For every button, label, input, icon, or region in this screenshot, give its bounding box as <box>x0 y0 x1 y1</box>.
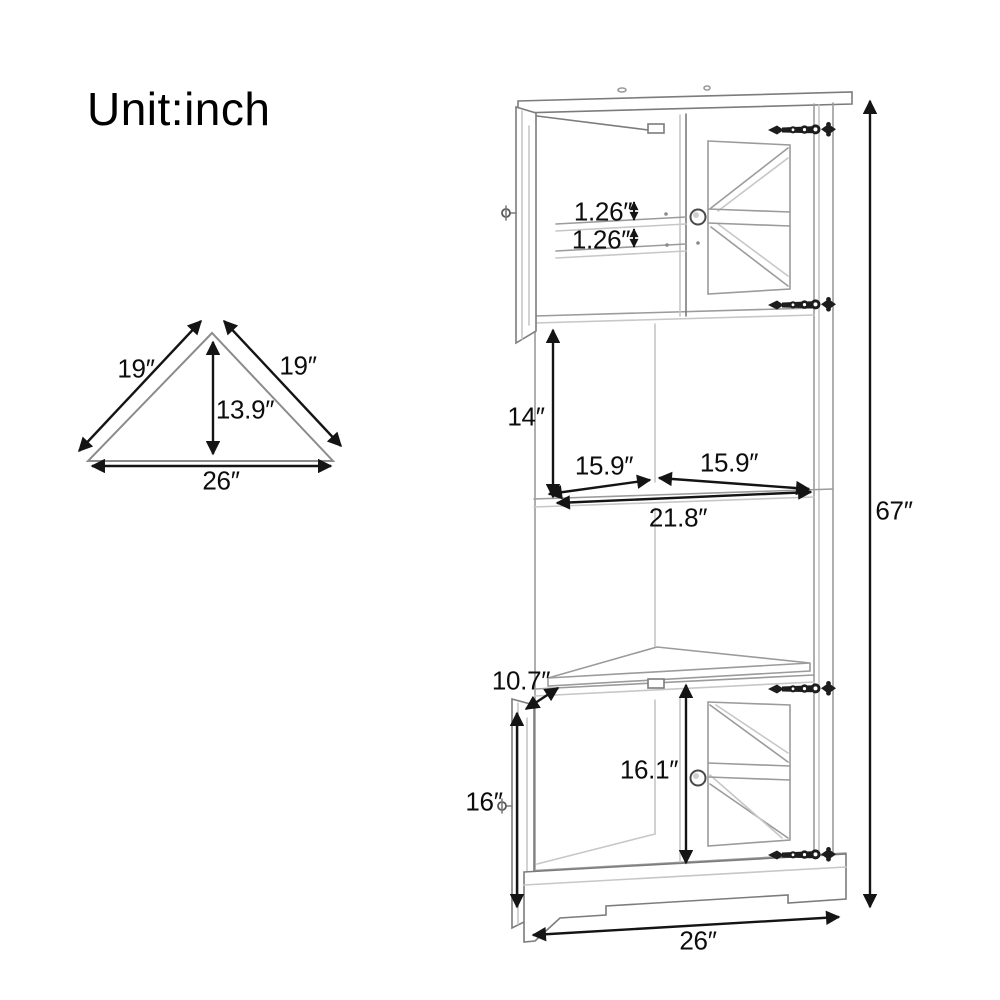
dimension-diagram: Unit:inch 19″ 19″ 13.9″ 26″ 1.26″ 1.26″ … <box>0 0 1000 1000</box>
shelf-right-width-label: 15.9″ <box>700 448 758 479</box>
door-latch <box>648 679 664 688</box>
shelf-left-width-arrow <box>549 480 650 494</box>
door-latch <box>648 124 664 133</box>
line-art <box>0 0 1000 1000</box>
lower-door-height-label: 16″ <box>465 787 502 818</box>
unit-title: Unit:inch <box>87 82 270 136</box>
shelf-thickness-bottom-label: 1.26″ <box>572 225 630 256</box>
hinge-icon <box>768 122 836 137</box>
door-width-label: 10.7″ <box>492 666 550 697</box>
triangle-depth-label: 13.9″ <box>216 395 274 426</box>
triangle-left-side-label: 19″ <box>117 354 154 385</box>
footprint-triangle <box>79 321 341 466</box>
lower-opening-height-label: 16.1″ <box>620 755 678 786</box>
shelf-right-width-arrow <box>659 478 809 489</box>
upper-closed-door <box>691 141 791 294</box>
shelf-full-width-label: 21.8″ <box>649 503 707 534</box>
triangle-dimension-arrows <box>79 321 341 466</box>
triangle-width-label: 26″ <box>202 466 239 497</box>
open-section-height-label: 14″ <box>507 402 544 433</box>
shelf-left-width-label: 15.9″ <box>575 451 633 482</box>
overall-height-label: 67″ <box>875 496 912 527</box>
cabinet-top-board <box>518 92 852 113</box>
triangle-right-side-label: 19″ <box>279 351 316 382</box>
upper-open-door <box>502 107 536 343</box>
base-width-label: 26″ <box>679 926 716 957</box>
shelf-thickness-top-label: 1.26″ <box>574 197 632 228</box>
